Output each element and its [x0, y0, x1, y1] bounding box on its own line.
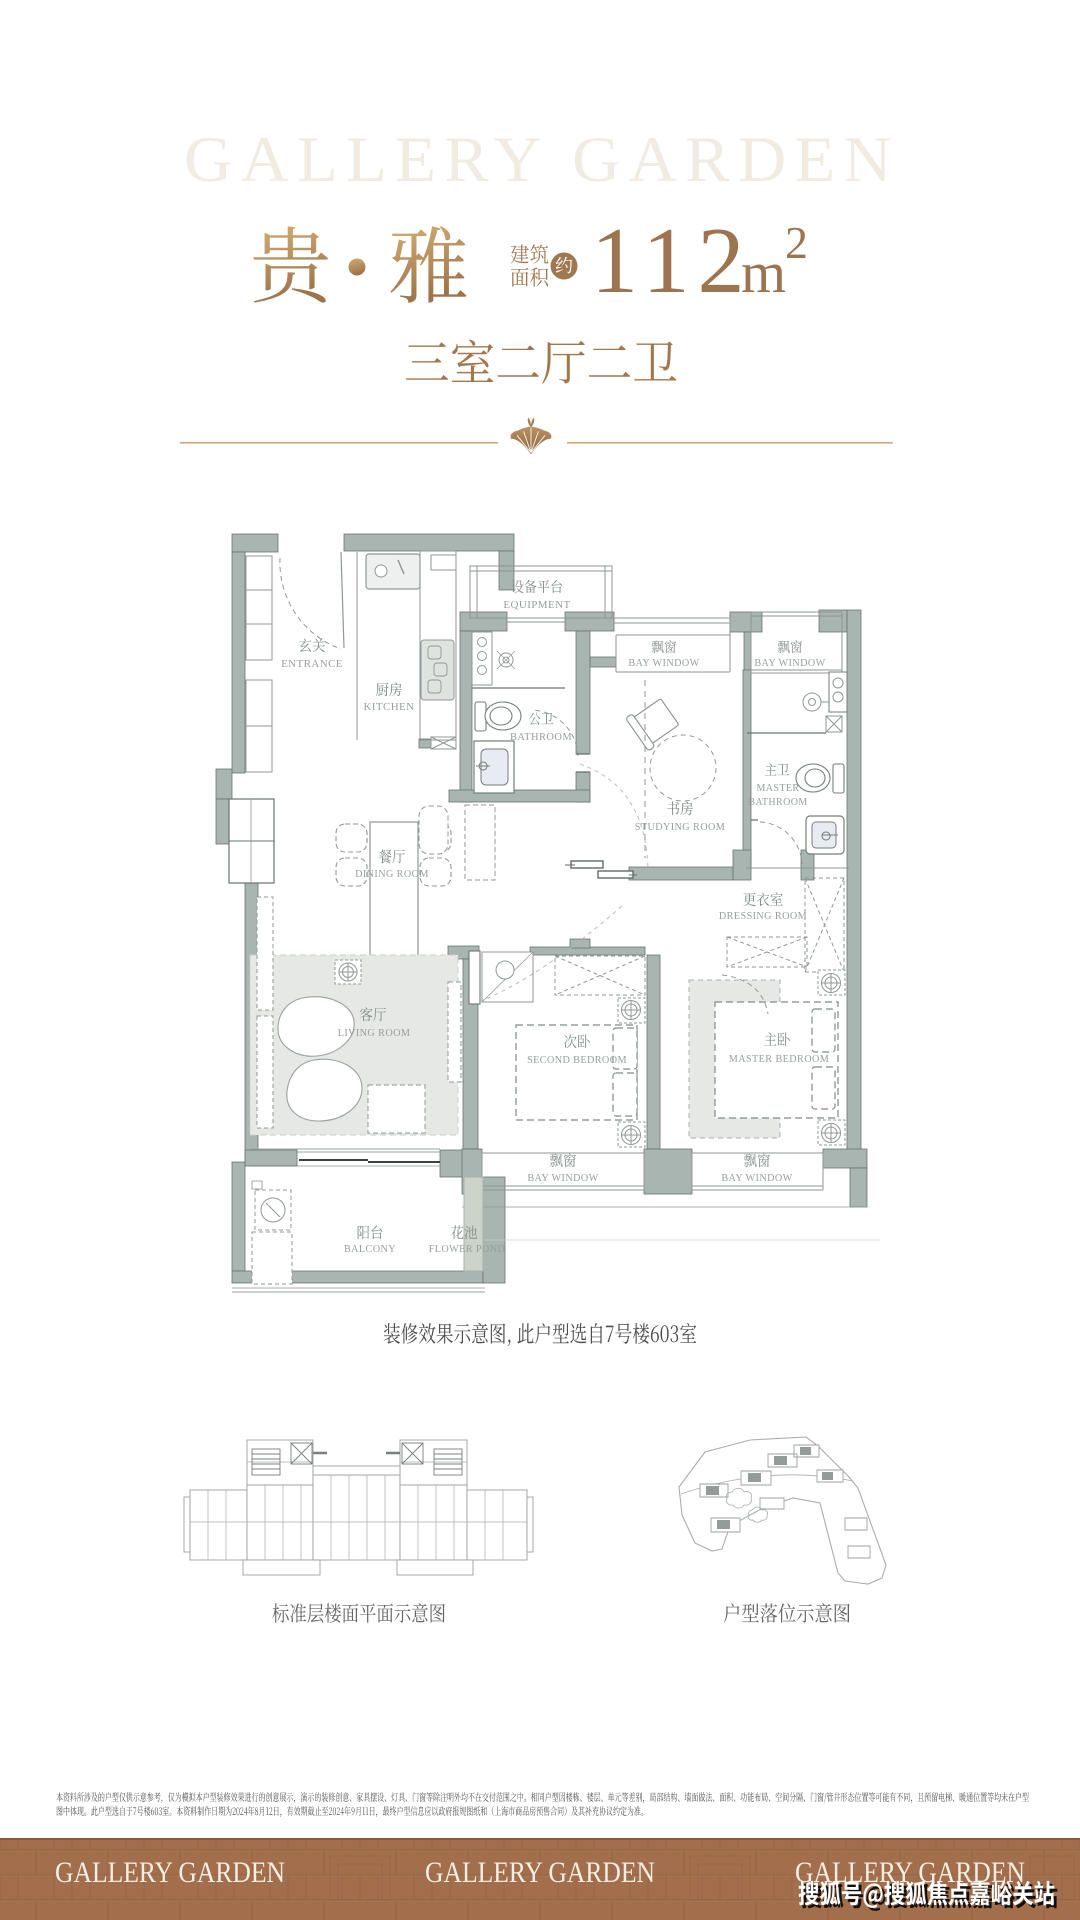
svg-text:BAY WINDOW: BAY WINDOW	[754, 658, 825, 669]
svg-text:BATHROOM: BATHROOM	[510, 732, 572, 743]
svg-text:BAY WINDOW: BAY WINDOW	[721, 1173, 792, 1184]
svg-text:ENTRANCE: ENTRANCE	[281, 658, 343, 670]
svg-text:FLOWER POND: FLOWER POND	[429, 1244, 506, 1255]
svg-text:SECOND BEDROOM: SECOND BEDROOM	[527, 1055, 627, 1066]
svg-text:BATHROOM: BATHROOM	[748, 797, 807, 808]
svg-text:KITCHEN: KITCHEN	[363, 701, 414, 713]
svg-text:GALLERY GARDEN: GALLERY GARDEN	[55, 1856, 285, 1889]
svg-text:GALLERY GARDEN: GALLERY GARDEN	[425, 1856, 655, 1889]
svg-text:DINING ROOM: DINING ROOM	[355, 869, 429, 880]
svg-text:BAY WINDOW: BAY WINDOW	[527, 1173, 598, 1184]
svg-text:MASTER BEDROOM: MASTER BEDROOM	[729, 1054, 829, 1065]
svg-text:DRESSING ROOM: DRESSING ROOM	[719, 911, 807, 922]
svg-text:112: 112	[591, 209, 753, 313]
svg-text:BAY WINDOW: BAY WINDOW	[628, 658, 699, 669]
svg-text:LIVING ROOM: LIVING ROOM	[338, 1028, 411, 1039]
svg-text:m: m	[741, 240, 786, 305]
svg-text:EQUIPMENT: EQUIPMENT	[503, 599, 570, 611]
svg-text:GALLERY GARDEN: GALLERY GARDEN	[184, 124, 900, 196]
svg-text:BALCONY: BALCONY	[344, 1244, 396, 1255]
svg-text:MASTER: MASTER	[757, 783, 800, 794]
svg-text:2: 2	[785, 217, 808, 268]
svg-text:STUDYING ROOM: STUDYING ROOM	[635, 822, 725, 833]
